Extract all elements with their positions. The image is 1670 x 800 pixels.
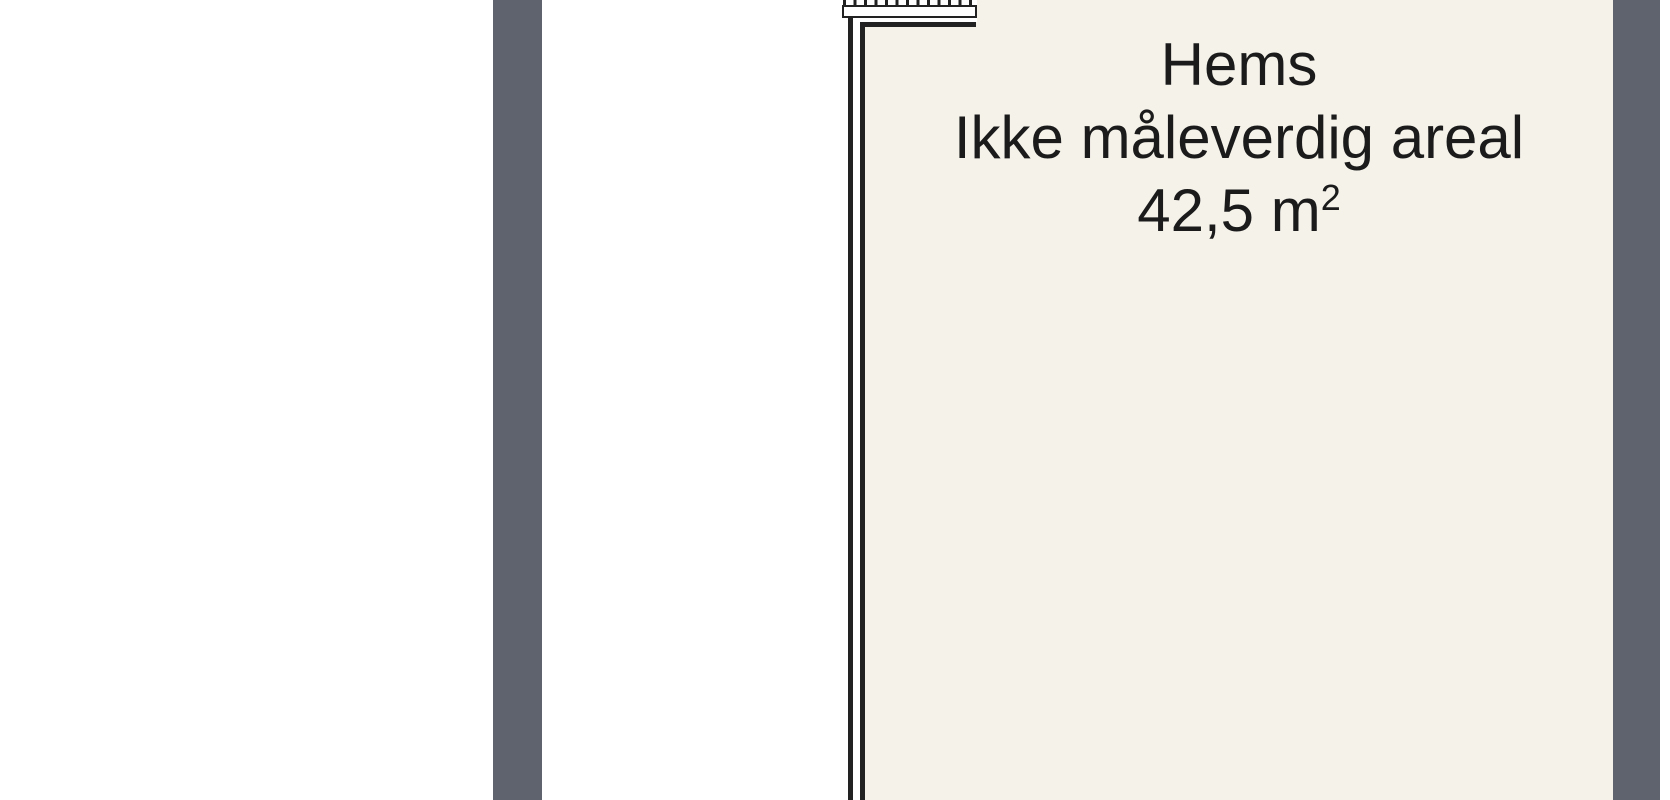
room-wall-left-outer-line (848, 17, 853, 800)
floor-plan: Hems Ikke måleverdig areal 42,5 m2 (0, 0, 1670, 800)
stair-landing (842, 5, 977, 18)
room-note-label: Ikke måleverdig areal (865, 101, 1613, 174)
wall-section-right (1613, 0, 1660, 800)
room-label: Hems Ikke måleverdig areal 42,5 m2 (865, 28, 1613, 247)
wall-section-left (493, 0, 542, 800)
room-wall-top-inner-line (860, 22, 976, 27)
room-area-value: 42,5 m (1137, 177, 1320, 244)
room-area-superscript: 2 (1321, 177, 1341, 218)
room-name-label: Hems (865, 28, 1613, 101)
room-area-label: 42,5 m2 (865, 174, 1613, 247)
